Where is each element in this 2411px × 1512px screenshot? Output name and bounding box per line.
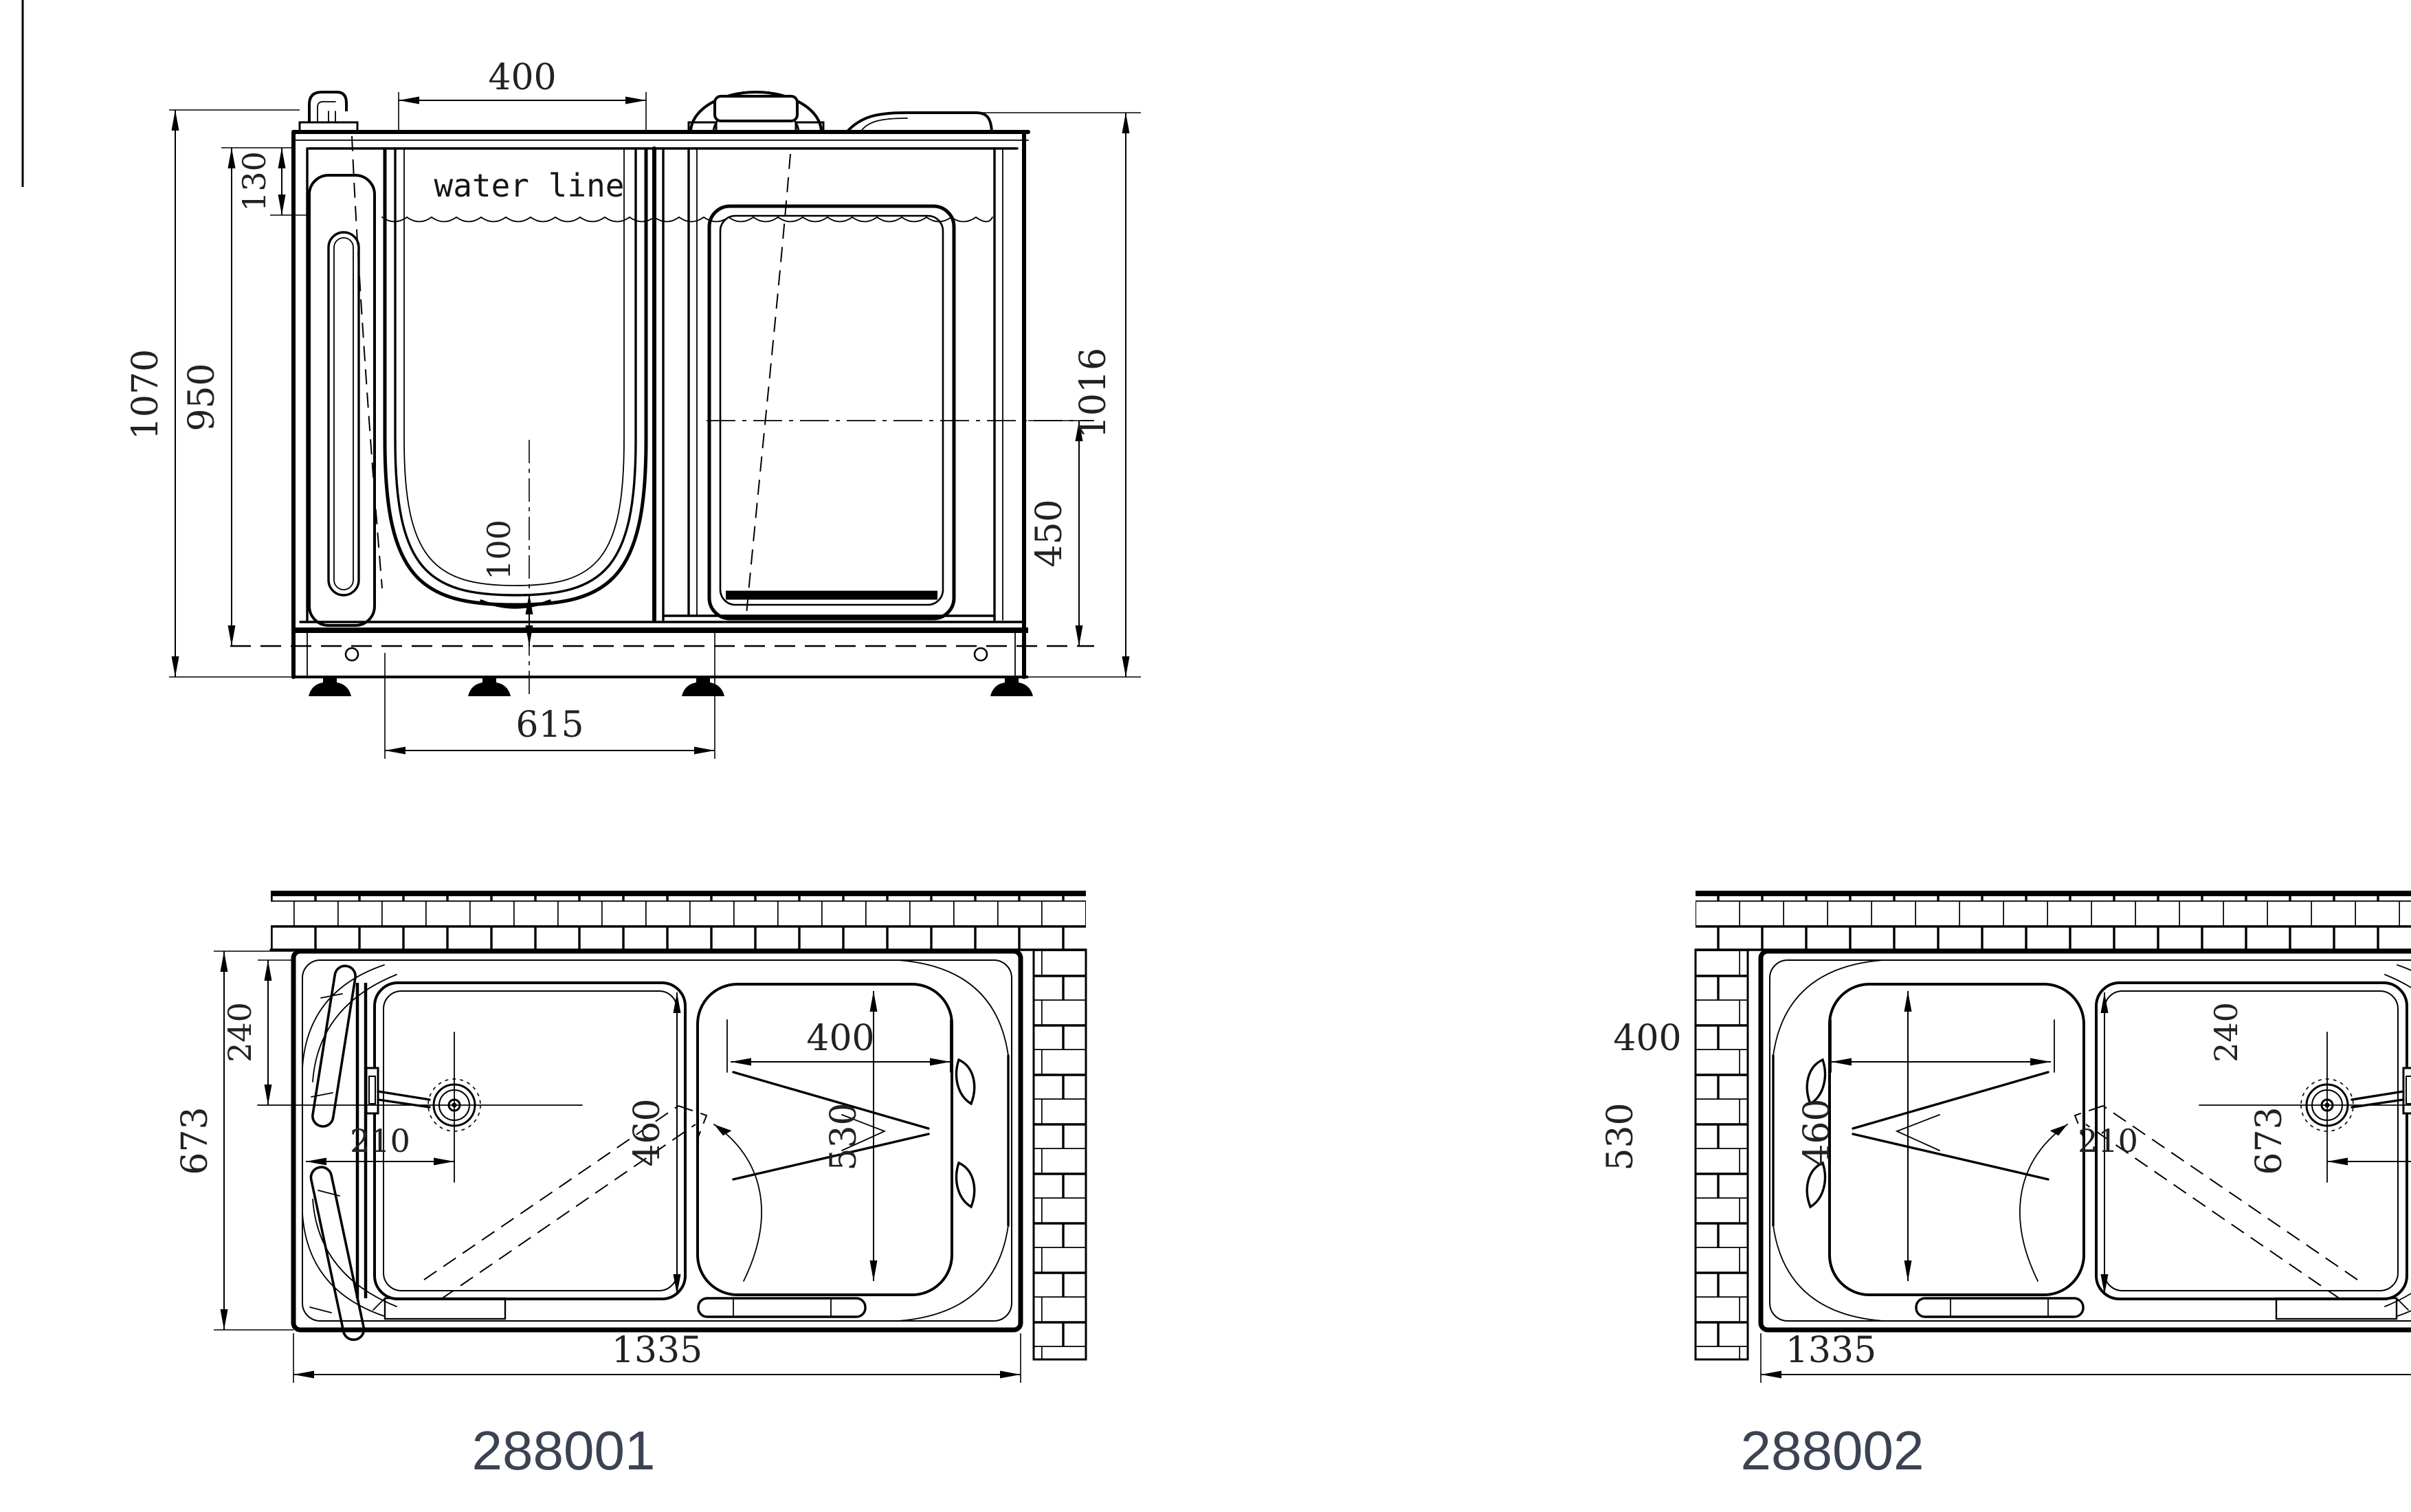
dim-seat-depth: 530 [1600, 1102, 1641, 1170]
dim-wall-height: 1016 [1073, 348, 1114, 438]
dim-width: 673 [175, 1107, 216, 1175]
water-line-label: water line [434, 167, 625, 204]
grab-handle [689, 92, 823, 132]
headrest [847, 113, 992, 132]
walk-in-bathtub-technical-drawing: water line 400 130 950 1070 100 [0, 0, 2411, 1512]
door-side-panel [309, 175, 375, 625]
tub-feet [309, 677, 1033, 696]
dim-door-opening: 460 [627, 1098, 668, 1166]
dim-width: 673 [2249, 1107, 2290, 1175]
elevation-dimensions: 400 130 950 1070 100 615 450 1016 [125, 57, 1141, 759]
dim-sump-depth: 100 [480, 520, 518, 580]
elevation-view: water line 400 130 950 1070 100 [125, 57, 1141, 759]
dim-length: 1335 [612, 1330, 702, 1371]
faucet [300, 92, 357, 132]
model-number-288002: 288002 [1741, 1420, 1924, 1481]
dim-drain-offset: 210 [350, 1122, 410, 1159]
dim-inner-depth: 950 [181, 363, 223, 431]
dim-top-width: 400 [488, 57, 556, 98]
plan-view-288001: 210 240 673 460 400 530 1335 288001 [175, 893, 1086, 1481]
skirt-bolt-left [346, 648, 358, 660]
dim-rim-to-waterline: 130 [236, 151, 273, 212]
drawing-sheet: water line 400 130 950 1070 100 [0, 0, 2411, 1512]
door-window [709, 206, 954, 619]
dim-drain-offset: 210 [2078, 1122, 2138, 1159]
dim-corner-to-drain: 240 [2208, 1002, 2245, 1063]
dim-corner-to-drain: 240 [221, 1002, 258, 1063]
skirt-bolt-right [975, 648, 987, 660]
plan-view-288002: 210 240 673 460 400 530 1335 288002 [1600, 893, 2411, 1481]
model-number-288001: 288001 [472, 1420, 656, 1481]
dim-seat-width: 400 [806, 1018, 874, 1059]
dim-length: 1335 [1786, 1330, 1876, 1371]
dim-seat-depth: 530 [823, 1102, 865, 1170]
dim-drain-offset: 615 [515, 704, 584, 746]
water-line: water line [382, 167, 992, 222]
dim-door-opening: 460 [1797, 1098, 1838, 1166]
dim-seat-to-floor: 450 [1029, 499, 1070, 567]
dim-overall-height: 1070 [125, 349, 166, 440]
dim-seat-width: 400 [1613, 1018, 1681, 1059]
